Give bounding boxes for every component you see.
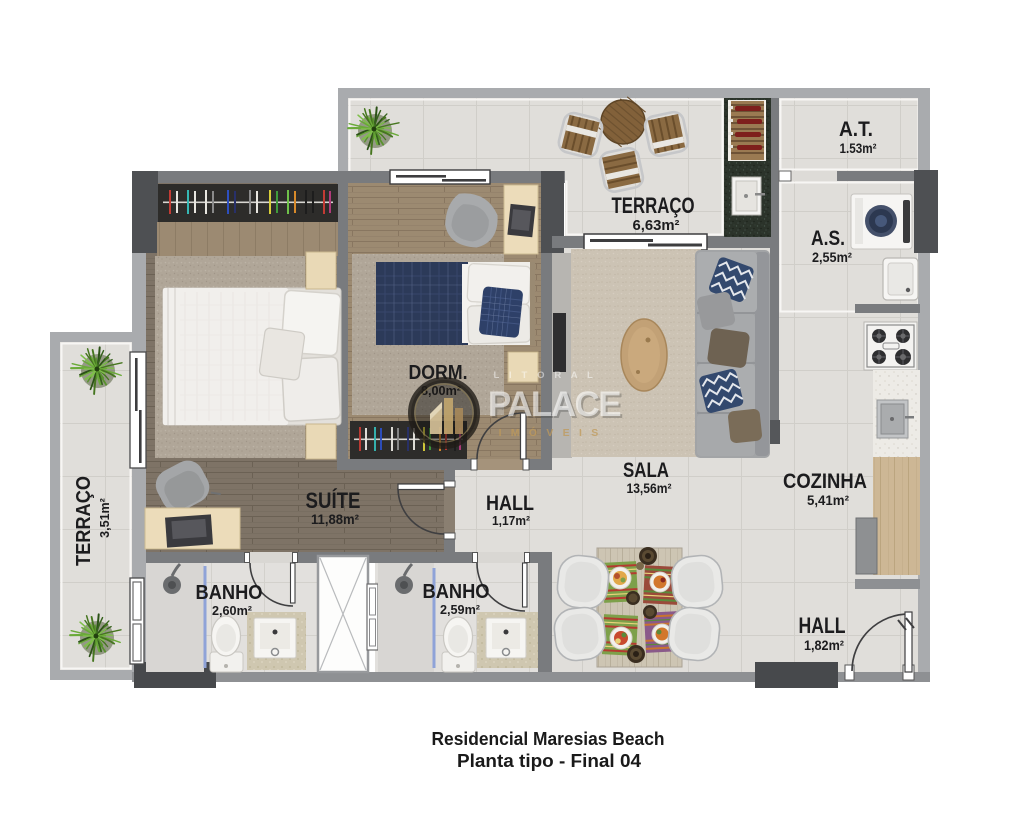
svg-text:BANHO: BANHO [423,581,490,603]
svg-text:1,82m²: 1,82m² [804,637,844,653]
svg-text:3,51m²: 3,51m² [98,498,112,538]
svg-text:PALACE: PALACE [488,385,620,424]
svg-text:TERRAÇO: TERRAÇO [73,476,95,566]
svg-text:SALA: SALA [623,459,669,482]
svg-text:5,41m²: 5,41m² [807,492,849,508]
svg-text:I M Ó V E I S: I M Ó V E I S [499,426,602,439]
svg-text:1,17m²: 1,17m² [492,513,531,528]
svg-text:2,55m²: 2,55m² [812,249,852,265]
svg-text:COZINHA: COZINHA [783,470,867,493]
svg-text:A.S.: A.S. [811,227,845,250]
svg-text:2,60m²: 2,60m² [212,603,253,618]
svg-text:TERRAÇO: TERRAÇO [612,193,695,218]
svg-text:Planta tipo - Final 04: Planta tipo - Final 04 [457,750,642,771]
svg-text:6,63m²: 6,63m² [633,218,680,234]
svg-text:13,56m²: 13,56m² [627,480,672,496]
svg-text:HALL: HALL [799,613,846,638]
svg-text:SUÍTE: SUÍTE [306,488,361,513]
svg-text:BANHO: BANHO [196,582,263,604]
svg-text:11,88m²: 11,88m² [311,511,359,527]
svg-text:Residencial Maresias Beach: Residencial Maresias Beach [432,728,665,749]
svg-text:1.53m²: 1.53m² [840,140,877,156]
svg-text:HALL: HALL [486,492,534,515]
svg-text:A.T.: A.T. [839,118,873,141]
svg-text:2,59m²: 2,59m² [440,602,481,617]
svg-text:L I T O R A L: L I T O R A L [494,370,597,381]
